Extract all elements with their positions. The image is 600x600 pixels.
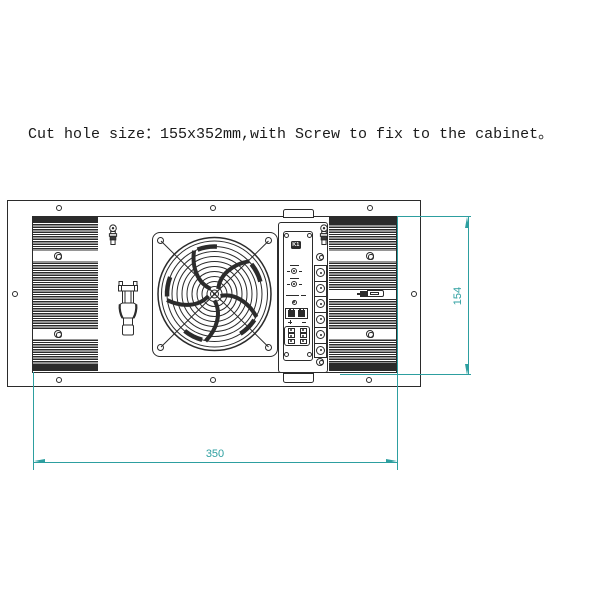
indicator-led (291, 268, 297, 274)
pin-cell (300, 333, 307, 338)
pin-cell (288, 333, 295, 338)
board-screw (284, 352, 289, 357)
heatsink-gap (33, 329, 98, 339)
left-heatsink (33, 217, 98, 371)
technical-drawing-canvas: Cut hole size：155x352mm,with Screw to fi… (0, 0, 600, 600)
extension-line (340, 374, 471, 375)
tiny-label (290, 265, 299, 267)
plus-mark (290, 320, 291, 324)
bolt-icon (316, 224, 332, 246)
fan-guard-icon (152, 232, 278, 357)
board-screw (284, 233, 289, 238)
pin-cell (300, 328, 307, 333)
terminal-divider (314, 327, 328, 328)
dim-154-label: 154 (452, 281, 464, 311)
connector-block (298, 310, 306, 317)
cut-hole-note: Cut hole size：155x352mm,with Screw to fi… (28, 126, 553, 144)
extension-line (33, 372, 34, 470)
test-point (292, 300, 297, 305)
mounting-hole (12, 291, 18, 297)
bolt-icon (105, 224, 121, 246)
cable-clip-icon (118, 280, 138, 336)
terminal-divider (314, 296, 328, 297)
dash (287, 271, 291, 272)
pin-cell (288, 328, 295, 333)
terminal-divider (314, 281, 328, 282)
extension-line (397, 216, 471, 217)
right-heatsink (329, 217, 397, 371)
mounting-hole (367, 205, 373, 211)
dim-arrow (465, 364, 469, 375)
tiny-label (301, 295, 306, 297)
latch-block (360, 291, 367, 297)
heatsink-top-band (329, 217, 397, 224)
board-screw (307, 233, 312, 238)
control-top-tab (283, 209, 314, 218)
dim-350-line (33, 462, 398, 463)
terminal-divider (314, 312, 328, 313)
relay-box: K1 (291, 241, 302, 250)
dash (299, 271, 303, 272)
screw-icon (54, 252, 62, 260)
screw-icon (54, 330, 62, 338)
minus-mark (302, 322, 306, 323)
dash (287, 284, 291, 285)
heatsink-gap (329, 329, 397, 339)
tiny-label (290, 278, 299, 280)
screw-icon (366, 330, 374, 338)
dim-350-label: 350 (195, 448, 235, 460)
heatsink-bottom-band (329, 363, 397, 371)
dim-arrow (34, 459, 45, 463)
screw-icon (366, 252, 374, 260)
dim-154-line (468, 216, 469, 375)
terminal-screw (316, 315, 325, 324)
dash (299, 284, 303, 285)
relay-label: K1 (292, 242, 299, 248)
slider-latch-inner (370, 292, 379, 295)
terminal-screw-icon (316, 358, 324, 366)
tiny-label (286, 295, 299, 297)
dim-arrow (465, 217, 469, 228)
terminal-divider (314, 343, 328, 344)
control-bottom-tab (283, 373, 314, 384)
connector-block (288, 310, 296, 317)
terminal-screw-icon (316, 253, 324, 261)
extension-line (397, 216, 398, 470)
heatsink-bottom-band (33, 364, 98, 371)
pin-cell (288, 339, 295, 344)
board-screw (307, 352, 312, 357)
indicator-led (291, 281, 297, 287)
terminal-screw (316, 346, 325, 355)
terminal-screw (316, 284, 325, 293)
dim-arrow (386, 459, 397, 463)
heatsink-top-band (33, 217, 98, 223)
pin-cell (300, 339, 307, 344)
heatsink-gap (33, 251, 98, 261)
heatsink-gap (329, 251, 397, 261)
